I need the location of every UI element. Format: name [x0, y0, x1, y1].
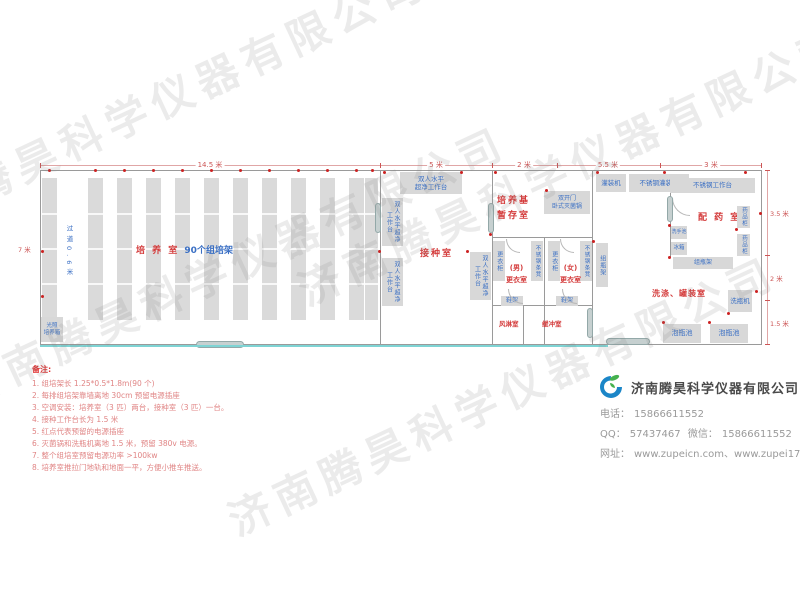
- dimension-tick: [40, 163, 41, 168]
- notes-section: 备注: 1. 组培架长 1.25*0.5*1.8m(90 个) 2. 每排组培架…: [32, 364, 228, 474]
- clean-bench: 双人水平超净工作台: [470, 252, 491, 300]
- power-outlet-dot: [297, 169, 300, 172]
- power-outlet-dot: [596, 171, 599, 174]
- power-outlet-dot: [378, 250, 381, 253]
- dimension-tick: [492, 163, 493, 168]
- power-outlet-dot: [466, 250, 469, 253]
- shelf-line: [42, 213, 378, 215]
- dimension-label: 3 米: [702, 160, 720, 170]
- clean-bench: 双人水平超净工作台: [382, 258, 403, 306]
- dimension-tick: [380, 163, 381, 168]
- hand-wash-sink: 洗手池: [671, 226, 687, 239]
- power-outlet-dot: [239, 169, 242, 172]
- aisle-label: 过道0.6米: [64, 225, 74, 279]
- note-item: 1. 组培架长 1.25*0.5*1.8m(90 个): [32, 378, 228, 390]
- note-item: 5. 红点代表预留的电源插座: [32, 426, 228, 438]
- bottle-rack: 组瓶架: [596, 243, 608, 287]
- power-outlet-dot: [755, 290, 758, 293]
- dimension-label: 2 米: [770, 273, 783, 283]
- medicine-cabinet: 药品柜: [737, 234, 750, 256]
- company-logo-icon: [598, 374, 624, 400]
- clean-bench: 双人水平超净工作台: [382, 198, 403, 246]
- power-outlet-dot: [708, 321, 711, 324]
- power-outlet-dot: [759, 212, 762, 215]
- culture-room-label: 培 养 室 90个组培架: [136, 243, 233, 256]
- bottle-rack: 组瓶架: [673, 257, 733, 269]
- wall: [492, 237, 592, 238]
- sliding-door: [587, 308, 593, 338]
- air-shower-label: 风淋室: [499, 318, 519, 328]
- sliding-door: [667, 196, 673, 222]
- dimension-label: 1.5 米: [770, 318, 789, 328]
- notes-title: 备注:: [32, 364, 228, 375]
- clean-bench: 双人水平超净工作台: [400, 172, 462, 194]
- dimension-tick: [765, 170, 770, 171]
- note-item: 3. 空调安装：培养室（3 匹）两台，接种室（3 匹）一台。: [32, 402, 228, 414]
- note-item: 8. 培养室推拉门地轨和地面一平，方便小推车推送。: [32, 462, 228, 474]
- sliding-door: [375, 203, 381, 233]
- culture-room-title: 培 养 室: [136, 246, 179, 256]
- light-incubator: 光照培养箱: [41, 317, 63, 342]
- culture-room-subtitle: 90个组培架: [184, 246, 233, 256]
- power-outlet-dot: [494, 171, 497, 174]
- fridge: 冰箱: [671, 242, 687, 255]
- soak-pool: 泡瓶池: [710, 324, 748, 343]
- medium-storage-label: 培养基暂存室: [497, 194, 530, 224]
- company-name: 济南腾昊科学仪器有限公司: [631, 378, 799, 397]
- note-item: 6. 灭菌锅和洗瓶机离地 1.5 米，预留 380v 电源。: [32, 438, 228, 450]
- note-item: 4. 接种工作台长为 1.5 米: [32, 414, 228, 426]
- power-outlet-dot: [668, 224, 671, 227]
- washing-room-label: 洗涤、罐装室: [652, 288, 706, 299]
- soak-pool: 泡瓶池: [663, 324, 701, 343]
- company-websites: 网址：www.zupeicn.com、www.zupei17.com: [600, 445, 800, 460]
- dimension-tick: [765, 300, 770, 301]
- power-outlet-dot: [41, 250, 44, 253]
- power-outlet-dot: [545, 189, 548, 192]
- womens-changing-room-label: (女)更衣室: [560, 262, 581, 286]
- power-outlet-dot: [41, 295, 44, 298]
- power-outlet-dot: [210, 169, 213, 172]
- power-outlet-dot: [592, 240, 595, 243]
- dimension-label: 5.5 米: [596, 160, 620, 170]
- power-outlet-dot: [152, 169, 155, 172]
- power-outlet-dot: [489, 233, 492, 236]
- power-outlet-dot: [181, 169, 184, 172]
- dimension-tick: [765, 344, 770, 345]
- sliding-door: [606, 338, 650, 345]
- dimension-line: [40, 165, 762, 166]
- dimension-tick: [761, 163, 762, 168]
- wall: [380, 170, 381, 345]
- door-track-line: [40, 345, 608, 347]
- dimension-tick: [557, 163, 558, 168]
- power-outlet-dot: [326, 169, 329, 172]
- power-outlet-dot: [662, 321, 665, 324]
- inoculation-room-label: 接种室: [420, 246, 453, 259]
- sliding-door: [488, 203, 494, 233]
- dimension-label: 7 米: [18, 244, 31, 254]
- company-info: 济南腾昊科学仪器有限公司 电话：15866611552 QQ：57437467 …: [598, 374, 800, 460]
- dimension-tick: [765, 255, 770, 256]
- note-item: 2. 每排组培架靠墙离地 30cm 预留电源插座: [32, 390, 228, 402]
- company-phone: 电话：15866611552: [600, 405, 800, 420]
- medicine-cabinet: 药品柜: [737, 206, 750, 228]
- power-outlet-dot: [668, 256, 671, 259]
- floor-plan: 14.5 米 5 米 2 米 5.5 米 3 米 3.5 米 2 米 1.5 米…: [0, 0, 800, 600]
- buffer-room-label: 缓冲室: [542, 318, 562, 328]
- company-qq-wechat: QQ：57437467 微信：15866611552: [600, 425, 800, 440]
- wardrobe: 更衣柜: [548, 241, 560, 281]
- wall: [544, 237, 545, 345]
- power-outlet-dot: [460, 171, 463, 174]
- dimension-label: 5 米: [427, 160, 445, 170]
- bottle-washer: 洗瓶机: [728, 290, 752, 312]
- power-outlet-dot: [663, 171, 666, 174]
- dimension-label: 2 米: [515, 160, 533, 170]
- filling-machine: 灌装机: [596, 174, 626, 192]
- power-outlet-dot: [735, 228, 738, 231]
- steel-bench: 不锈钢条凳: [531, 241, 543, 281]
- power-outlet-dot: [371, 169, 374, 172]
- power-outlet-dot: [94, 169, 97, 172]
- work-table: 不锈钢工作台: [670, 178, 755, 193]
- dimension-label: 3.5 米: [770, 208, 789, 218]
- note-item: 7. 整个组培室预留电源功率 >100kw: [32, 450, 228, 462]
- power-outlet-dot: [355, 169, 358, 172]
- power-outlet-dot: [383, 171, 386, 174]
- steel-bench: 不锈钢条凳: [580, 241, 592, 281]
- shelf-line: [42, 283, 378, 285]
- power-outlet-dot: [727, 312, 730, 315]
- dimension-line: [767, 170, 768, 345]
- sterilizer: 双开门卧式灭菌锅: [544, 191, 590, 214]
- power-outlet-dot: [48, 169, 51, 172]
- power-outlet-dot: [268, 169, 271, 172]
- power-outlet-dot: [744, 171, 747, 174]
- wall: [523, 305, 524, 345]
- power-outlet-dot: [123, 169, 126, 172]
- mens-changing-room-label: (男)更衣室: [506, 262, 527, 286]
- dimension-tick: [660, 163, 661, 168]
- pharmacy-room-label: 配 药 室: [698, 210, 741, 223]
- wardrobe: 更衣柜: [493, 241, 505, 281]
